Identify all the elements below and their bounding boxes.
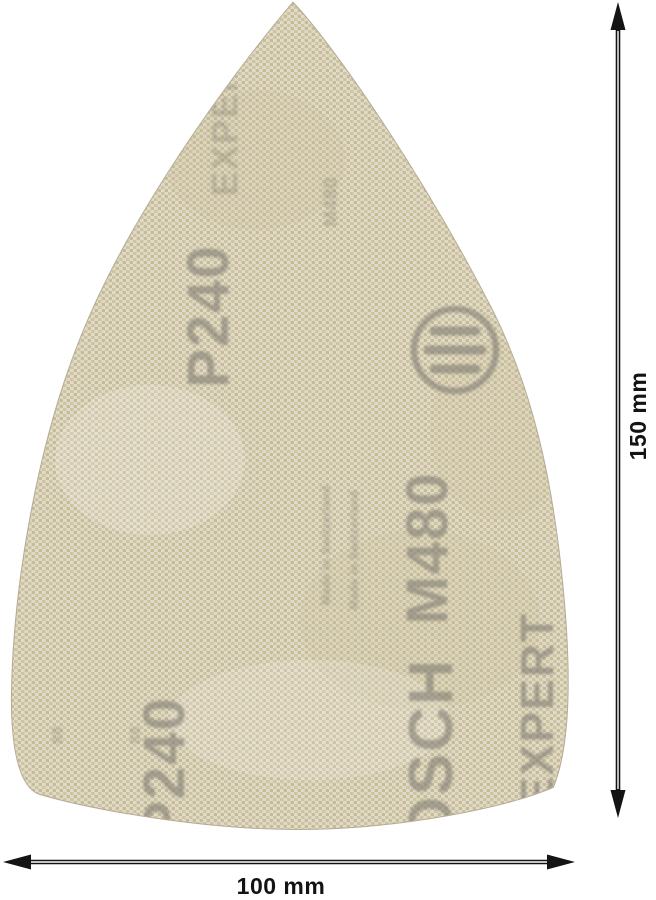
print-origin: Made in Switzerland	[321, 485, 333, 604]
arrow-left-icon	[3, 855, 31, 870]
width-dimension: 100 mm	[3, 855, 575, 900]
product-image: P240 P240 M480 BOSCH EXPERT EXPERT M480 …	[0, 0, 656, 900]
print-brand: BOSCH	[397, 658, 466, 892]
height-dimension: 150 mm	[611, 2, 652, 818]
arrow-up-icon	[611, 2, 626, 30]
arrow-down-icon	[611, 790, 626, 818]
print-grit: P240	[132, 696, 197, 839]
width-dimension-label: 100 mm	[237, 873, 326, 899]
print-line: EXPERT	[511, 612, 563, 808]
arrow-right-icon	[547, 855, 575, 870]
print-grit: P240	[176, 244, 241, 387]
print-mark: 88	[127, 726, 144, 744]
print-line: EXPERT	[204, 40, 245, 196]
print-mark: 88	[49, 726, 66, 744]
print-origin: Made in Switzerland	[349, 490, 361, 609]
print-model: M480	[395, 471, 460, 624]
print-model-small: M480	[321, 177, 342, 227]
sanding-sheet: P240 P240 M480 BOSCH EXPERT EXPERT M480 …	[12, 3, 570, 892]
height-dimension-label: 150 mm	[625, 372, 651, 461]
